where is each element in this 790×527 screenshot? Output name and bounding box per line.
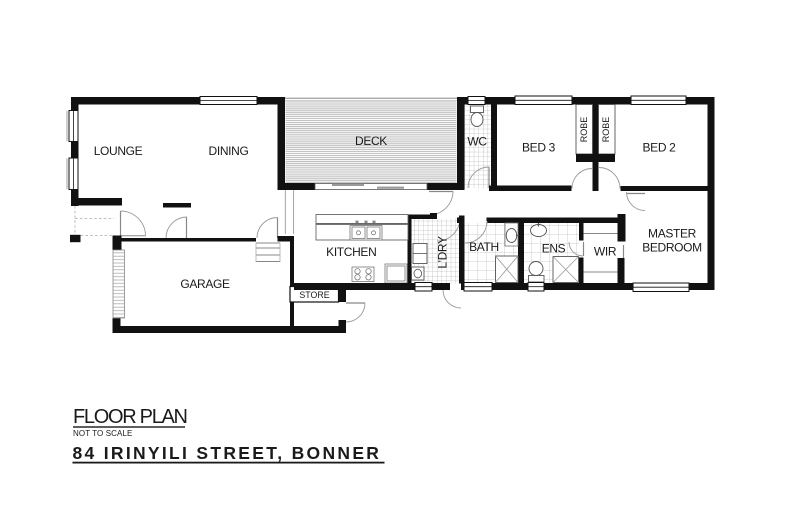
svg-text:84 IRINYILI STREET, BONNER: 84 IRINYILI STREET, BONNER xyxy=(73,443,382,463)
svg-text:FLOOR PLAN: FLOOR PLAN xyxy=(73,406,187,428)
svg-text:BATH: BATH xyxy=(469,240,499,254)
svg-text:DINING: DINING xyxy=(209,144,249,158)
svg-text:LOUNGE: LOUNGE xyxy=(94,144,143,158)
svg-text:DECK: DECK xyxy=(355,134,387,148)
svg-text:MASTER: MASTER xyxy=(648,227,697,241)
svg-text:L'DRY: L'DRY xyxy=(436,236,450,269)
svg-text:KITCHEN: KITCHEN xyxy=(326,245,376,259)
svg-text:STORE: STORE xyxy=(299,290,329,300)
svg-text:ROBE: ROBE xyxy=(579,117,589,143)
svg-text:BED 3: BED 3 xyxy=(522,141,556,155)
svg-text:BEDROOM: BEDROOM xyxy=(642,241,702,255)
svg-text:ENS: ENS xyxy=(542,242,566,256)
svg-text:BED 2: BED 2 xyxy=(643,141,677,155)
svg-text:WIR: WIR xyxy=(594,245,617,259)
svg-text:ROBE: ROBE xyxy=(601,117,611,143)
svg-text:WC: WC xyxy=(467,135,487,149)
svg-text:GARAGE: GARAGE xyxy=(180,277,230,291)
svg-text:NOT TO SCALE: NOT TO SCALE xyxy=(73,429,132,438)
